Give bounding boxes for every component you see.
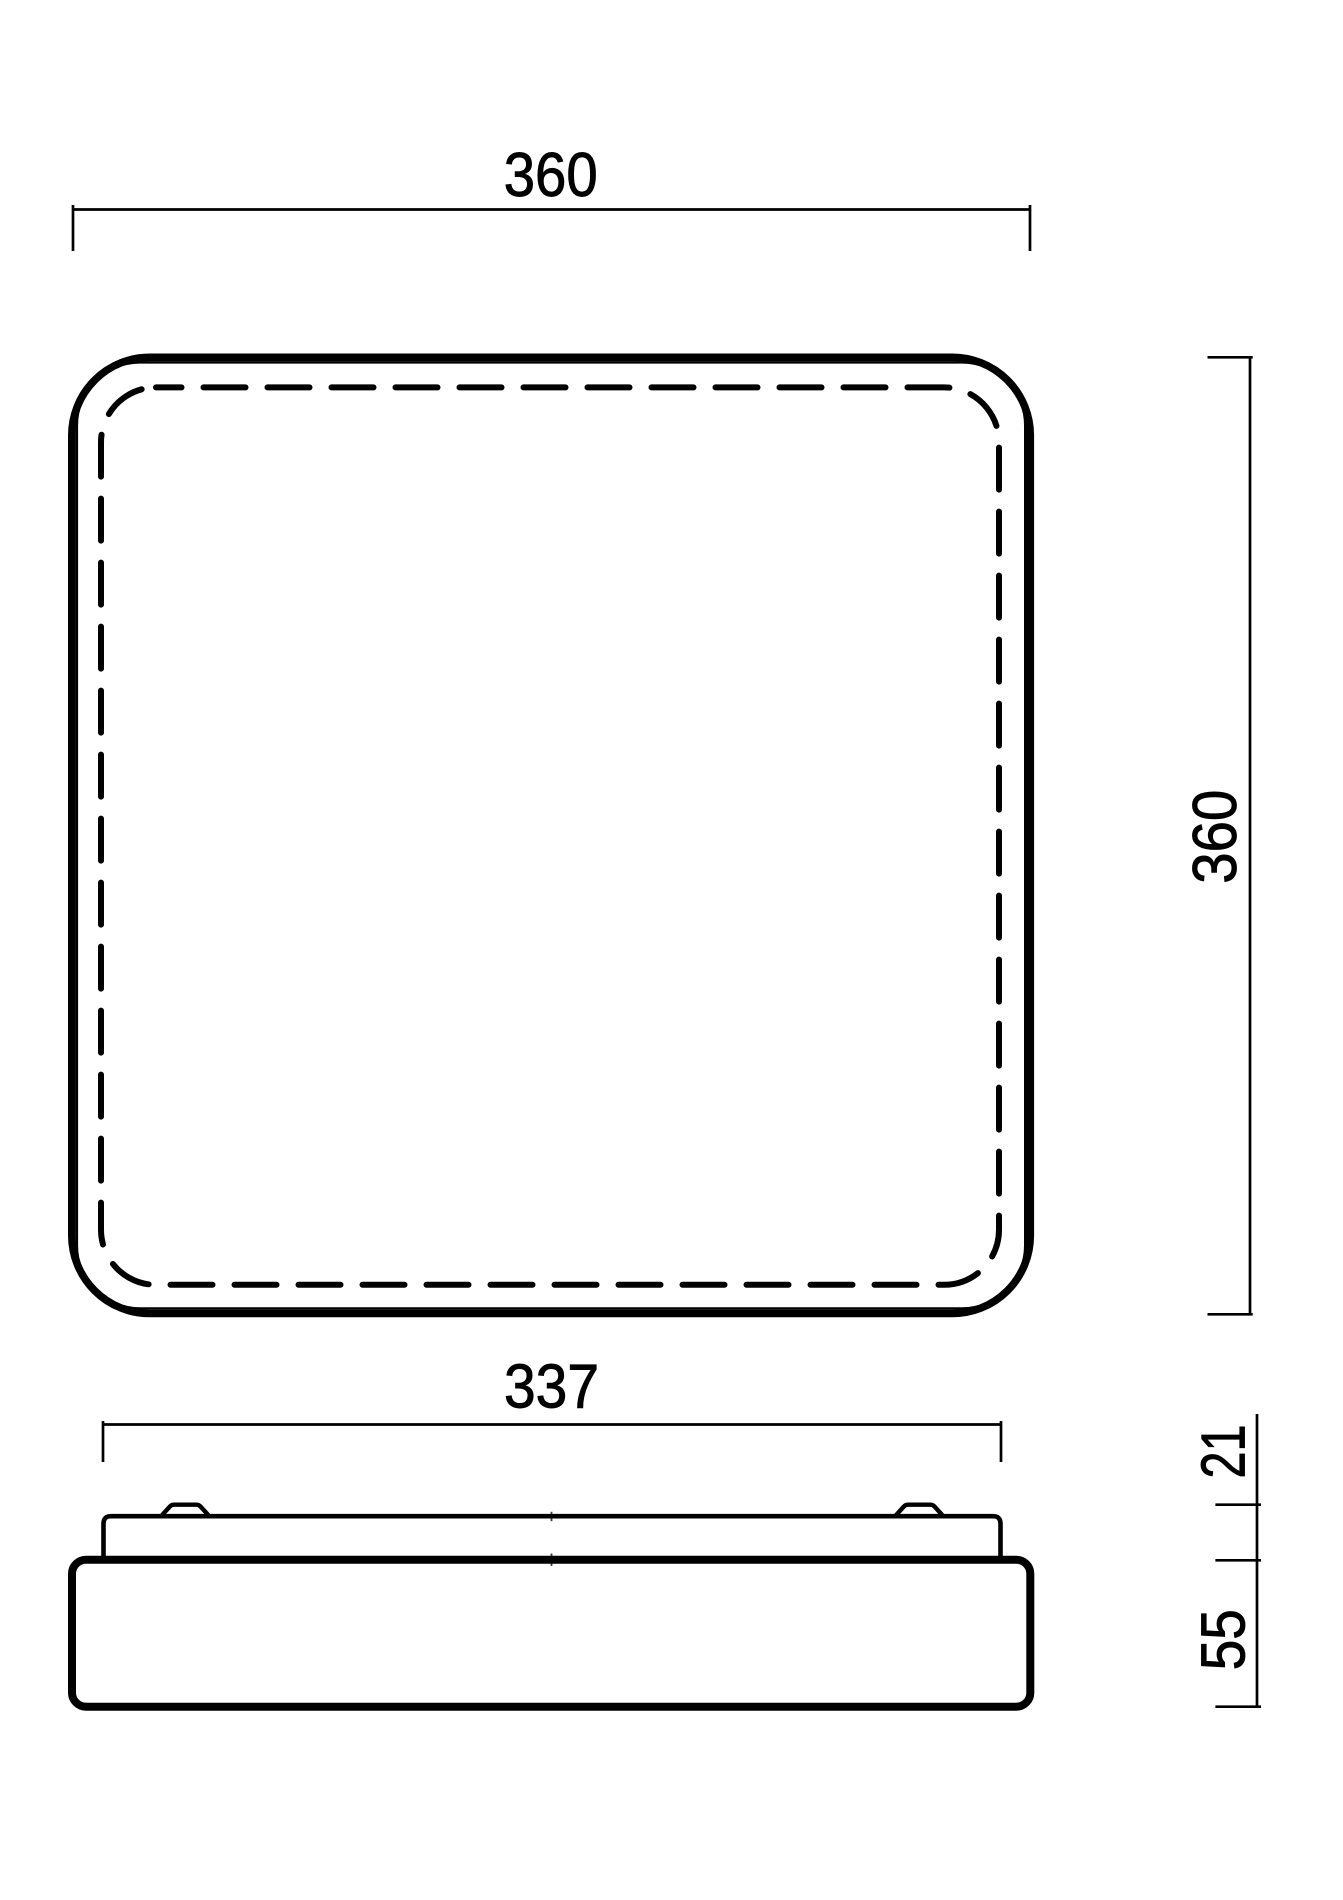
svg-text:21: 21 <box>1190 1425 1259 1479</box>
svg-text:55: 55 <box>1189 1609 1258 1670</box>
svg-text:337: 337 <box>504 1353 599 1422</box>
svg-text:360: 360 <box>504 141 598 210</box>
svg-text:360: 360 <box>1181 790 1250 884</box>
